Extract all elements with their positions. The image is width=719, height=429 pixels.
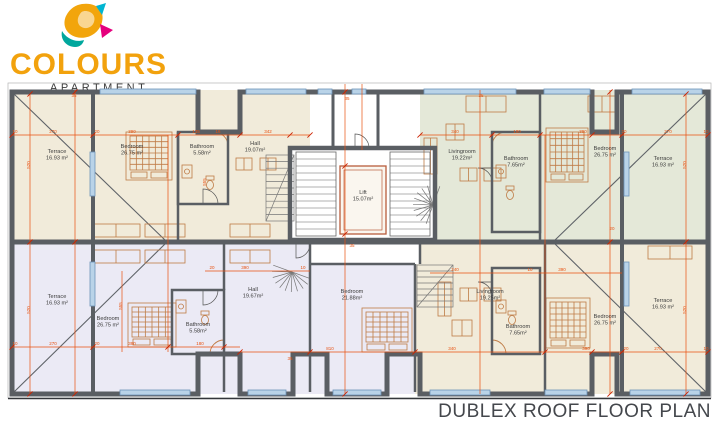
dimension-value: 35 <box>344 96 350 101</box>
room-label-bedroom-bottom-right: Bedroom26.75 m² <box>594 314 617 326</box>
dimension-value: 555 <box>202 178 207 186</box>
plan-title: DUBLEX ROOF FLOOR PLAN <box>438 401 711 423</box>
dimension-value: 10 <box>12 341 18 346</box>
dimension-value: 10 <box>300 265 306 270</box>
dimension-value: 16 <box>215 129 221 134</box>
room-label-bedroom-bottom-left: Bedroom26.75 m² <box>97 316 120 328</box>
dimension-value: 342 <box>264 129 272 134</box>
dimension-value: 390 <box>128 341 136 346</box>
dimension-value: 810 <box>326 346 334 351</box>
dimension-value: 520 <box>26 306 31 314</box>
dimension-value: 390 <box>241 265 249 270</box>
room-label-livingroom-bottom-right: Livingroom19.25m² <box>476 289 504 301</box>
room-label-bedroom-bottom-center: Bedroom21.88m² <box>341 289 364 301</box>
room-label-terrace-bottom-left: Terrace16.93 m² <box>46 294 68 306</box>
dimension-value: 240 <box>451 267 459 272</box>
dimension-value: 10 <box>527 267 533 272</box>
dimension-value: 520 <box>26 161 31 169</box>
dimension-value: 180 <box>513 129 521 134</box>
room-label-bedroom-top-left: Bedroom26.75 m² <box>121 144 144 156</box>
dimension-value: 20 <box>94 341 100 346</box>
floor-plan-drawing: Terrace16.93 m²Bedroom26.75 m²Bathroom5.… <box>0 0 719 429</box>
dimension-value: 390 <box>579 129 587 134</box>
dimension-value: 10 <box>703 346 709 351</box>
dimension-value: 20 <box>609 226 615 231</box>
room-label-terrace-bottom-right: Terrace16.93 m² <box>652 298 674 310</box>
dimension-value: 10 <box>12 129 18 134</box>
room-label-terrace-top-left: Terrace16.93 m² <box>46 149 68 161</box>
dimension-value: 10 <box>703 129 709 134</box>
dimension-value: 35 <box>71 93 77 98</box>
dimension-value: 390 <box>582 346 590 351</box>
dimension-value: 35 <box>349 243 355 248</box>
dimension-value: 390 <box>128 129 136 134</box>
dimension-value: 180 <box>196 341 204 346</box>
room-label-bedroom-top-right: Bedroom26.75 m² <box>594 146 617 158</box>
dimension-value: 520 <box>682 161 687 169</box>
room-label-livingroom-top-right: Livingroom19.22m² <box>448 149 476 161</box>
dimension-value: 270 <box>49 341 57 346</box>
dimension-value: 520 <box>682 306 687 314</box>
dimension-value: 35 <box>287 356 293 361</box>
dimension-value: 270 <box>654 346 662 351</box>
dimension-value: 20 <box>621 129 627 134</box>
dimension-value: 135 <box>192 129 200 134</box>
dimension-value: 340 <box>451 129 459 134</box>
dimension-value: 20 <box>94 129 100 134</box>
dimension-value: 390 <box>558 267 566 272</box>
dimension-value: 270 <box>49 129 57 134</box>
room-label-terrace-top-right: Terrace16.93 m² <box>652 156 674 168</box>
dimension-value: 555 <box>118 302 123 310</box>
dimension-value: 270 <box>664 129 672 134</box>
dimension-value: 20 <box>209 265 215 270</box>
dimension-value: 35 <box>478 93 484 98</box>
dimension-value: 340 <box>448 346 456 351</box>
dimension-value: 20 <box>623 346 629 351</box>
